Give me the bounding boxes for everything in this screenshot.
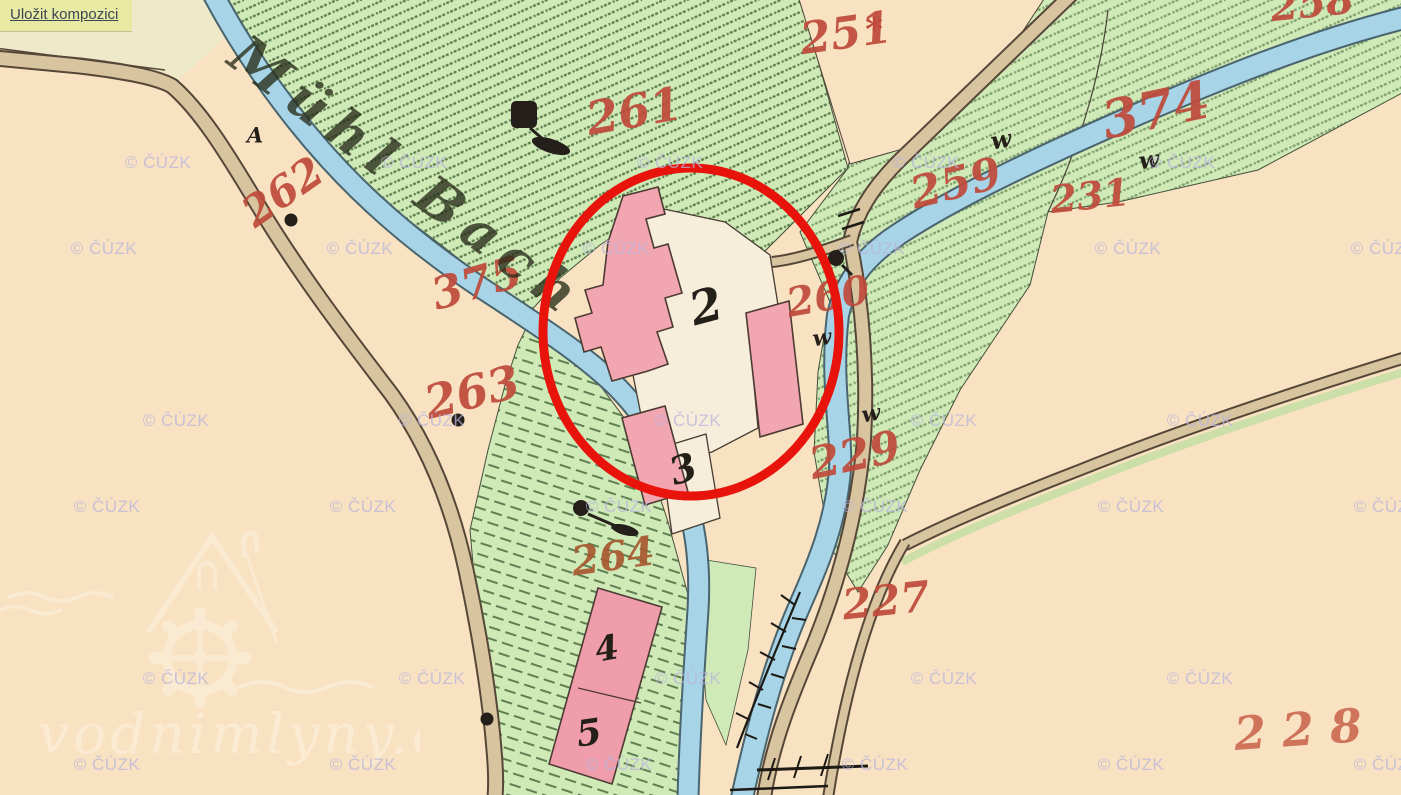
cadastral-map xyxy=(0,0,1401,795)
save-composition-button[interactable]: Uložit kompozici xyxy=(0,0,132,31)
map-viewport[interactable]: vodnimlyny.cz 25126125837425923126237526… xyxy=(0,0,1401,795)
